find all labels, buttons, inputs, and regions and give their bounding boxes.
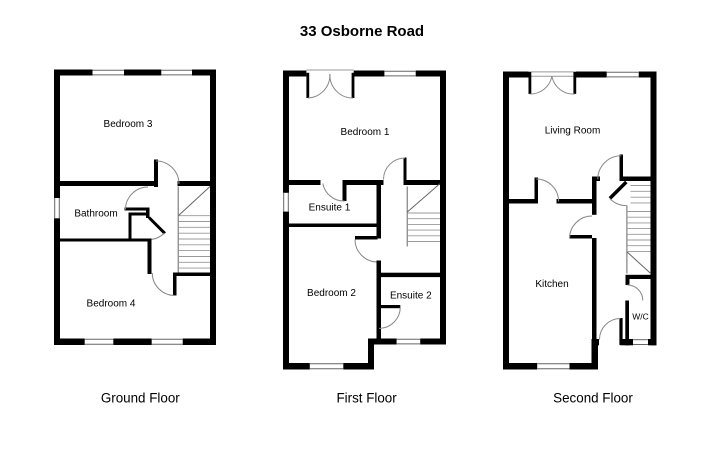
svg-text:Bedroom 3: Bedroom 3	[104, 119, 153, 130]
svg-text:33 Osborne Road: 33 Osborne Road	[300, 23, 424, 40]
svg-text:Bedroom 1: Bedroom 1	[341, 127, 390, 138]
svg-text:Kitchen: Kitchen	[535, 279, 568, 290]
svg-text:First Floor: First Floor	[336, 391, 397, 406]
svg-text:Ensuite 2: Ensuite 2	[390, 291, 432, 302]
svg-text:Bathroom: Bathroom	[74, 208, 117, 219]
svg-text:Living Room: Living Room	[545, 125, 601, 136]
svg-text:Ensuite 1: Ensuite 1	[309, 203, 351, 214]
svg-text:Bedroom 2: Bedroom 2	[307, 288, 356, 299]
svg-text:Ground Floor: Ground Floor	[101, 391, 180, 406]
svg-text:W/C: W/C	[632, 312, 649, 322]
svg-text:Bedroom 4: Bedroom 4	[87, 299, 136, 310]
svg-text:Second Floor: Second Floor	[553, 391, 633, 406]
